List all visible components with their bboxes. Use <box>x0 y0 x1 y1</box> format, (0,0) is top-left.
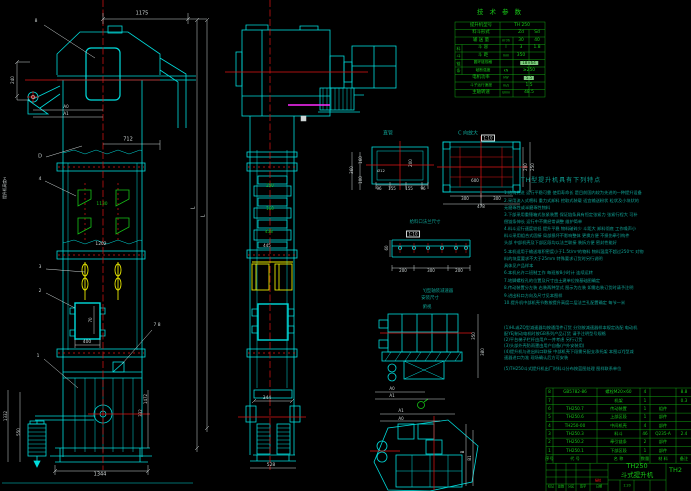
notes-line: (3)头部外壳防雨罩由用户自备(户外安装用) <box>504 344 584 348</box>
details-text: 60 <box>385 245 389 250</box>
notes-line: (4)提升机与进出料口联接 中部机壳下段需另配支承托架 本图以YJ型减 <box>504 350 634 354</box>
left_view-text: 提升机高度H <box>3 177 7 199</box>
titleblock-label: 处数 <box>558 485 564 488</box>
bom-cell: 螺栓M20×60 <box>605 390 631 394</box>
green-buckets <box>78 190 428 409</box>
drive_plan-text: B <box>461 451 465 454</box>
notes-line: 3.下部采用重锤箱式张紧装置 保证链条具有恒定张紧力 张紧行程大 可补 <box>504 212 638 216</box>
details-text: C 向放大 <box>458 132 478 137</box>
drive_plan-text: YJ型轴装减速器 <box>423 290 453 294</box>
notes-line: 4.料斗运行速度较低 提升平稳 物料破碎少 斗距大 卸料彻底 工作噪声小 <box>504 227 636 231</box>
drive_plan-text: 俯视 <box>423 306 432 310</box>
left_view-text: 1344 <box>94 473 107 478</box>
details-text: 478 <box>477 205 485 209</box>
bom-cell: 2 <box>644 440 647 444</box>
notes-line: 头部 中部机壳及下部区段均以法兰联接 装拆方便 密封性能好 <box>504 241 617 245</box>
details-text: 给料口法兰尺寸 <box>410 221 441 225</box>
bom-cell: 1 <box>644 398 647 402</box>
drive_plan-text: 350 <box>472 332 476 340</box>
notes-line: 10.提升机中部机壳节数按提升高度二层法兰孔配置确定 每节一米 <box>504 301 625 305</box>
bom-cell: Q235-A <box>655 432 671 436</box>
left_view-text: 1175 <box>136 12 149 17</box>
yellow-chain-buckets <box>82 262 293 300</box>
drive_plan-text: A1 <box>398 409 403 413</box>
bom-cell: TH250.6 <box>566 415 584 419</box>
tech-table-cell: 1.5 <box>526 84 533 88</box>
details-text: 96 <box>376 187 381 191</box>
tech-table-cell: kW <box>503 76 508 79</box>
notes-line: 料斗采用组合式固接 局部损坏不影响整体 更换方便 不损伤牵引构件 <box>504 234 629 238</box>
details-text: Ø12 <box>377 169 385 173</box>
notes-line: 1.结构先进 运行平稳可靠 使用寿命长 是目前国内较为先进的一种提升设备 <box>504 191 642 195</box>
notes-line: 6.本机允许二班制工作 每班按8小时计 连续运转 <box>504 271 593 275</box>
tech-table-cell: 输 送 量 <box>473 39 489 43</box>
notes-line: (5)TH250斗式提升机出厂时料斗分布按蓝图处理 图样联系单位 <box>504 367 621 371</box>
details-text: 1:10 <box>406 231 420 238</box>
left_view-text: 1332 <box>4 411 8 421</box>
left_view-text: 1202 <box>95 243 106 247</box>
bom-cell: TH250.3 <box>566 432 584 436</box>
bom-header-cell: 序号 <box>545 457 553 461</box>
tech-table-cell: 圆环链规格 <box>474 61 492 65</box>
bom-cell: 6 <box>548 407 551 411</box>
middle_view-text: 360 <box>350 166 354 174</box>
bom-cell: 3 <box>548 432 551 436</box>
details-text: 200 <box>409 159 413 167</box>
bom-cell: GB5782-86 <box>563 390 587 394</box>
details-text: 200 <box>455 269 463 273</box>
bom-cell: 4 <box>644 423 647 427</box>
bom-cell: 4 <box>644 390 647 394</box>
drive_plan-text: B1 <box>468 455 472 460</box>
left_view-text: L <box>192 207 197 210</box>
details-text: 直管 <box>383 132 393 137</box>
titleblock-dwg-number: TH2 <box>669 467 682 474</box>
notes-line: 2.采用流入式喂料 重力式卸料 挖取式装载 适宜输送粉状 粒状及小块状的 <box>504 198 639 202</box>
notes-line: 5.本机适用于输送堆积密度小于1.5t/m³的物料 物料温度不超过250℃ 对物 <box>504 250 644 254</box>
middle_view-text: 528 <box>267 464 275 468</box>
tech-table-cell: ≥250 <box>523 69 535 73</box>
left_view-text: 3 <box>39 266 42 270</box>
left_view-text: 550 <box>17 428 21 436</box>
bom-header-cell: 材 料 <box>658 457 668 461</box>
bom-cell: 传动装置 <box>610 407 627 411</box>
bom-cell: 2.4 <box>681 432 688 436</box>
bom-cell: TH250-00 <box>565 423 586 427</box>
bom-header-cell: 名 称 <box>614 457 624 461</box>
tech-table-cell: 斗 距 <box>478 54 488 58</box>
tech-table-cell: 18×64 <box>520 61 538 65</box>
left_view-text: 4 <box>39 178 42 182</box>
details-text: 300 <box>461 197 469 201</box>
notes-line: 7.地脚螺栓孔的位置及尺寸由土建单位按基础图确定 <box>504 279 600 283</box>
details-text: 200 <box>399 269 407 273</box>
tech-table-cell: 提升机型号 <box>470 24 492 28</box>
middle_view-text: 438 <box>265 230 273 234</box>
tech-table-cell: Sd <box>534 31 540 35</box>
tech-table-cell: 料 <box>457 47 461 51</box>
tech-table-cell: 料斗形式 <box>472 31 490 35</box>
left_view-text: 1472 <box>144 394 148 404</box>
tech-table-cell: 3 <box>520 46 523 50</box>
titleblock-model: TH250 <box>608 463 666 470</box>
notes-line: (1)HL或ZQ型减速器均按通用件订货 分别按减速器样本规定选配 电动机 <box>504 326 637 330</box>
bom-cell: 部件 <box>659 440 667 444</box>
details-text: 300 <box>427 269 435 273</box>
middle_view-text: 445 <box>263 244 271 248</box>
bom-cell: 中间机壳 <box>610 423 627 427</box>
tech-table-cell: 48.5 <box>524 91 534 95</box>
tech-table-cell: 斗 容 <box>478 46 488 50</box>
tech-table-cell: 1.8 <box>534 46 541 50</box>
notes-line: 8.传动装置分左装 右装两种型式 图示为左装 如需右装订货时请予注明 <box>504 286 633 290</box>
bom-header-cell: 备注 <box>680 457 688 461</box>
bom-cell: 1 <box>548 448 551 452</box>
tech-table-cell: 破断强度 <box>476 69 491 73</box>
tech-table-cell: l <box>505 46 506 50</box>
bom-cell: 8 <box>548 390 551 394</box>
drive_plan-text: 380 <box>481 348 485 356</box>
tech-table-cell: 斗子运行速度 <box>470 84 492 88</box>
left_view-text: 712 <box>123 138 133 143</box>
drive_plan-text: A0 <box>398 417 403 421</box>
left_view-text: 70 <box>89 317 93 322</box>
tech-table-cell: r/min <box>502 92 510 95</box>
tech-table-cell: mm <box>503 54 510 57</box>
middle_view-text: 160 <box>266 207 274 211</box>
notes-line: 配YEJ制动电机时按GB系列产品订货 请予注明型号规格 <box>504 332 606 336</box>
bom-cell: 1 <box>644 407 647 411</box>
notes-line: (2)平台梯子栏杆由用户一并考虑 另行订货 <box>504 338 582 342</box>
bom-header-cell: 代 号 <box>570 457 580 461</box>
tech-table-cell: 电机功率 <box>472 76 490 80</box>
bom-cell: 8.8 <box>681 390 688 394</box>
tech-table-cell: 5.5 <box>524 76 534 80</box>
titleblock-label: 描校 <box>595 479 601 482</box>
details-text: 155 <box>405 187 413 191</box>
titleblock-label: 签字 <box>580 485 586 488</box>
tech-table-cell: 主轴转速 <box>472 91 490 95</box>
details-text: 96 <box>420 187 425 191</box>
tech-table-cell: TH 250 <box>514 24 530 28</box>
bom-cell: 0.3 <box>681 398 688 402</box>
left_view-text: 2 <box>39 290 42 294</box>
tech-table-cell: m/s <box>503 84 509 87</box>
left_view-text: A1 <box>63 112 68 116</box>
notes-line: 偿链条伸长 运行中不需经常调整 维护简单 <box>504 219 582 223</box>
bom-header-cell: 数量 <box>641 457 649 461</box>
notes-line: 速器进口为准 现场确认后方可安装 <box>504 356 568 360</box>
left_view-text: D <box>38 155 42 160</box>
bom-cell: 7 <box>548 398 551 402</box>
drive_plan-text: 安装尺寸 <box>421 297 439 301</box>
titleblock-label: 1:20 <box>623 484 631 487</box>
details-text: 300 <box>493 197 501 201</box>
details-text: 250 <box>531 163 535 171</box>
bom-cell: 机架 <box>614 398 622 402</box>
tech-table-cell: 30 <box>518 39 524 43</box>
left_view-text: 1 <box>37 355 40 359</box>
bom-cell: TH250.2 <box>566 440 584 444</box>
drive_plan-text: A0 <box>389 387 394 391</box>
left_view-text: 7 8 <box>154 324 161 328</box>
bom-cell: 部件 <box>659 415 667 419</box>
left_view-text: L <box>202 215 207 218</box>
middle_view-text: 344 <box>263 397 271 401</box>
bom-cell: 4 <box>548 423 551 427</box>
tech-table-cell: 链 <box>457 62 461 66</box>
titleblock-label: 日期 <box>596 485 602 488</box>
tech-table-cell: 40 <box>534 39 540 43</box>
titleblock-label: 分区 <box>568 485 574 488</box>
bom-cell: 1 <box>644 415 647 419</box>
notes-title: TH型提升机具有下列特点 <box>521 178 601 184</box>
left_view-text: 240 <box>11 76 15 84</box>
tech-table-cell: 条 <box>457 69 461 73</box>
left_view-text: A0 <box>63 105 68 109</box>
left_view-text: 1130 <box>96 203 107 207</box>
left_view-text: 400 <box>83 341 91 345</box>
tech-table-cell: Zd <box>518 31 524 35</box>
details-text: 200 <box>524 163 528 171</box>
left_view-text: 8 <box>35 20 38 24</box>
titleblock-label: 标记 <box>548 485 554 488</box>
drive_plan-text: A1 <box>389 394 394 398</box>
cad-drawing-canvas: 技 术 参 数 TH型提升机具有下列特点 TH250 斗式提升机 TH2 811… <box>0 0 691 491</box>
cyan-geometry <box>2 25 520 491</box>
bom-cell: 部件 <box>659 448 667 452</box>
tech-table-cell: kN <box>504 69 509 72</box>
bom-cell: 牵引链条 <box>610 440 627 444</box>
details-text: 155 <box>388 187 396 191</box>
bom-cell: TH250.7 <box>566 407 584 411</box>
bom-cell: 2 <box>548 440 551 444</box>
tech-table-cell: m³/h <box>502 39 510 42</box>
notes-line: 无磨琢性或半磨琢性物料 <box>504 205 550 209</box>
bom-cell: 料斗 <box>614 432 622 436</box>
tech-table-cell: 斗 <box>457 54 461 58</box>
bom-cell: 部件 <box>659 423 667 427</box>
left_view-text: 332 <box>139 409 143 417</box>
bom-cell: TH250.1 <box>566 448 584 452</box>
middle_view-text: 160 <box>359 156 363 164</box>
bom-cell: 1 <box>644 448 647 452</box>
notes-line: 具体见产品样本 <box>504 264 533 268</box>
titleblock-name: 斗式提升机 <box>608 472 666 479</box>
details-text: 600 <box>471 179 479 183</box>
details-text: 1:10 <box>481 135 495 142</box>
bom-cell: 组件 <box>659 407 667 411</box>
middle_view-text: 100 <box>359 176 363 184</box>
bom-cell: 下部区段 <box>610 448 627 452</box>
notes-line: 9.进出料口方向及尺寸见本图样 <box>504 293 562 297</box>
tech-table-title: 技 术 参 数 <box>455 9 545 16</box>
bom-cell: 上部区段 <box>610 415 627 419</box>
bom-cell: 5 <box>548 415 551 419</box>
tech-table-cell: 350 <box>517 54 525 58</box>
bom-cell: 46 <box>642 432 647 436</box>
middle_view-text: 250 <box>266 184 274 188</box>
notes-line: 料的块度要求不大于25mm 特殊要求订货时另行说明 <box>504 257 603 261</box>
